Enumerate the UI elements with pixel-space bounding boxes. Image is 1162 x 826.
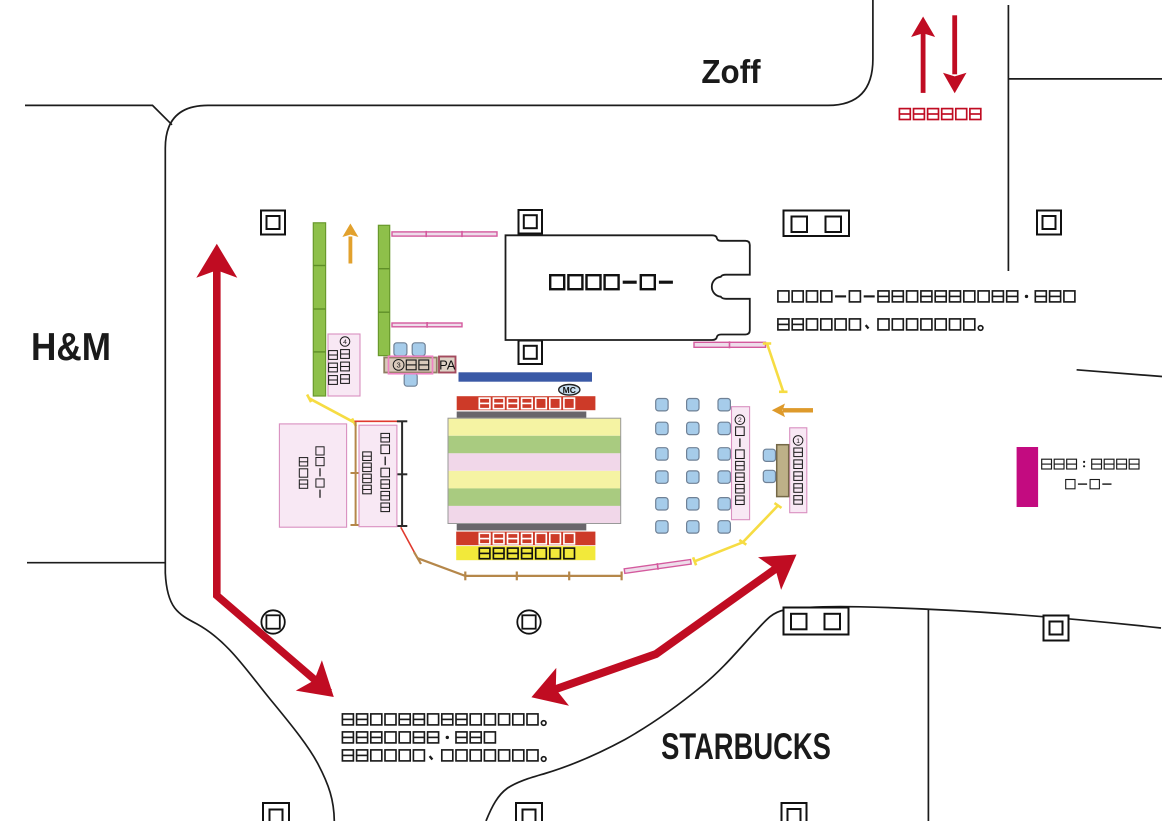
svg-text:4: 4 — [343, 339, 347, 346]
svg-text:PA: PA — [439, 358, 456, 373]
svg-text:STARBUCKS: STARBUCKS — [661, 726, 831, 767]
svg-text:2: 2 — [738, 417, 742, 424]
svg-text:Zoff: Zoff — [701, 53, 760, 90]
svg-text:MC: MC — [563, 385, 576, 395]
svg-text:3: 3 — [396, 361, 400, 370]
svg-text:1: 1 — [796, 438, 800, 445]
svg-text:H&M: H&M — [31, 324, 111, 368]
